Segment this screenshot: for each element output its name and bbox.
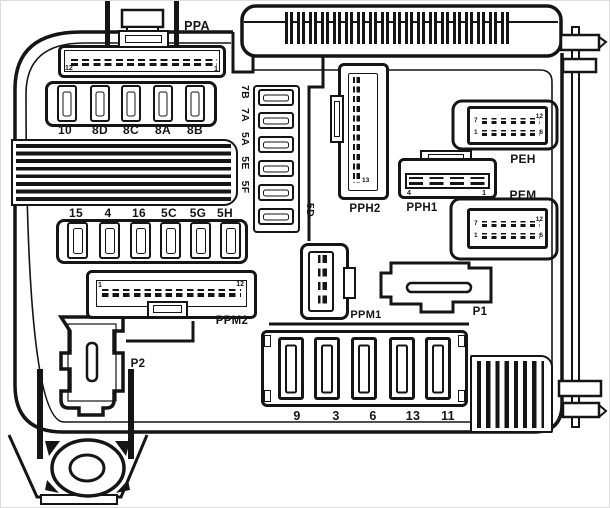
fuse-8c (121, 85, 141, 122)
connector-pph1: 4 1 (398, 158, 497, 199)
ppm1-tab (343, 267, 356, 299)
ribbed-block-horizontal (11, 139, 238, 206)
pem-pin-12: 12 (536, 216, 543, 223)
peh-pin-12: 12 (536, 113, 543, 120)
fuse-label-5f: 5F (239, 179, 251, 195)
fuse-6 (351, 337, 377, 400)
bolt-left (37, 369, 43, 459)
fuse-3 (314, 337, 340, 400)
fuse-11 (425, 337, 451, 400)
p2-label: P2 (125, 358, 151, 370)
pph2-label: PPH2 (338, 203, 392, 215)
fuse-label-16: 16 (126, 206, 152, 220)
pem-pin-6: 6 (539, 232, 543, 239)
fuse-5c (160, 222, 181, 259)
pph2-pins (353, 77, 360, 183)
fuse-label-8a: 8A (150, 123, 176, 137)
wire-left (105, 1, 110, 48)
ppm1-label: PPM1 (343, 309, 389, 321)
pph1-pins (409, 177, 487, 185)
connector-pem: 7 12 1 6 (467, 208, 548, 249)
fuse-label-8d: 8D (87, 123, 113, 137)
fuse-label-7b: 7B (239, 84, 251, 100)
rod-clip-1 (561, 35, 599, 50)
fuse-label-3: 3 (322, 409, 350, 423)
fuse-8d (90, 85, 110, 122)
fuse-5d (258, 208, 294, 225)
pph1-pin-left: 4 (407, 190, 411, 197)
fuse-label-5g: 5G (185, 206, 211, 220)
pem-pin-1: 1 (474, 232, 478, 239)
connector-ppa: 12 1 (58, 45, 226, 78)
p1-label: P1 (467, 306, 493, 318)
peh-pin-6: 6 (539, 129, 543, 136)
pph2-pin-bottom: 13 (362, 177, 369, 184)
fuse-label-8c: 8C (118, 123, 144, 137)
grommet-inner (70, 455, 104, 481)
rod-clip-4 (563, 403, 599, 417)
connector-peh: 7 12 1 6 (467, 106, 548, 145)
fuse-16 (130, 222, 151, 259)
rod-clip-3 (559, 381, 601, 396)
fuse-5a (258, 136, 294, 153)
fuse-label-5a: 5A (239, 131, 251, 147)
peh-label: PEH (503, 152, 543, 166)
pem-pin-7: 7 (474, 220, 478, 227)
ppa-pin-right: 1 (214, 66, 218, 73)
ppm1-pins (318, 255, 327, 308)
peh-pin-1: 1 (474, 129, 478, 136)
fuse-5e (258, 160, 294, 177)
fuse-9 (278, 337, 304, 400)
ppa-label: PPA (177, 19, 217, 33)
connector-pph2: 13 (338, 63, 389, 200)
ppm2-label: PPM2 (205, 315, 259, 327)
pph1-pin-right: 1 (482, 190, 486, 197)
fuse-label-10: 10 (52, 123, 78, 137)
fuse-label-8b: 8B (182, 123, 208, 137)
fuse-5h (220, 222, 241, 259)
fuse-label-5d: 5D (304, 202, 316, 218)
pem-pins-top (482, 221, 540, 227)
wire-clip (122, 10, 163, 27)
fuse-8b (185, 85, 205, 122)
pph2-tab (330, 95, 344, 143)
fuse-label-11: 11 (434, 409, 462, 423)
ppm2-pin-left: 1 (98, 282, 102, 289)
ppa-bump (118, 30, 169, 48)
fuse-5f (258, 184, 294, 201)
fuse-label-13: 13 (399, 409, 427, 423)
fuse-label-7a: 7A (239, 107, 251, 123)
fuse-4 (99, 222, 120, 259)
fuse-label-15: 15 (63, 206, 89, 220)
rod-clip-2 (563, 59, 596, 72)
fuse-5g (190, 222, 211, 259)
fuse-label-4: 4 (95, 206, 121, 220)
ppa-pins (71, 59, 217, 66)
pph1-label: PPH1 (397, 202, 447, 214)
comb-pins (285, 12, 511, 44)
fuse-7b (258, 89, 294, 106)
fuse-8a (153, 85, 173, 122)
fuse-15 (67, 222, 88, 259)
fuse-10 (57, 85, 77, 122)
peh-pin-7: 7 (474, 117, 478, 124)
peh-pins-top (482, 118, 540, 124)
fusebox-diagram: PPA 12 1 10 8D 8C 8A 8B 15 4 16 5C 5G 5H… (0, 0, 610, 508)
mounting-rod (572, 27, 579, 427)
fuse-7a (258, 112, 294, 129)
fuse-13 (389, 337, 415, 400)
fuse-label-5c: 5C (156, 206, 182, 220)
ppa-pin-left: 12 (65, 65, 73, 72)
ribbed-block-vertical (470, 355, 553, 433)
bolt-right (128, 369, 134, 459)
ppm2-pin-right: 12 (236, 281, 244, 288)
fuse-label-5e: 5E (239, 155, 251, 171)
pem-label: PEM (503, 188, 543, 202)
peh-pins-bottom (482, 130, 540, 136)
fuse-label-6: 6 (359, 409, 387, 423)
ppm2-bump (147, 301, 188, 318)
ppm2-pins (102, 289, 241, 297)
fuse-label-5h: 5H (212, 206, 238, 220)
connector-ppm1 (300, 243, 349, 320)
pem-pins-bottom (482, 233, 540, 239)
fuse-label-9: 9 (283, 409, 311, 423)
